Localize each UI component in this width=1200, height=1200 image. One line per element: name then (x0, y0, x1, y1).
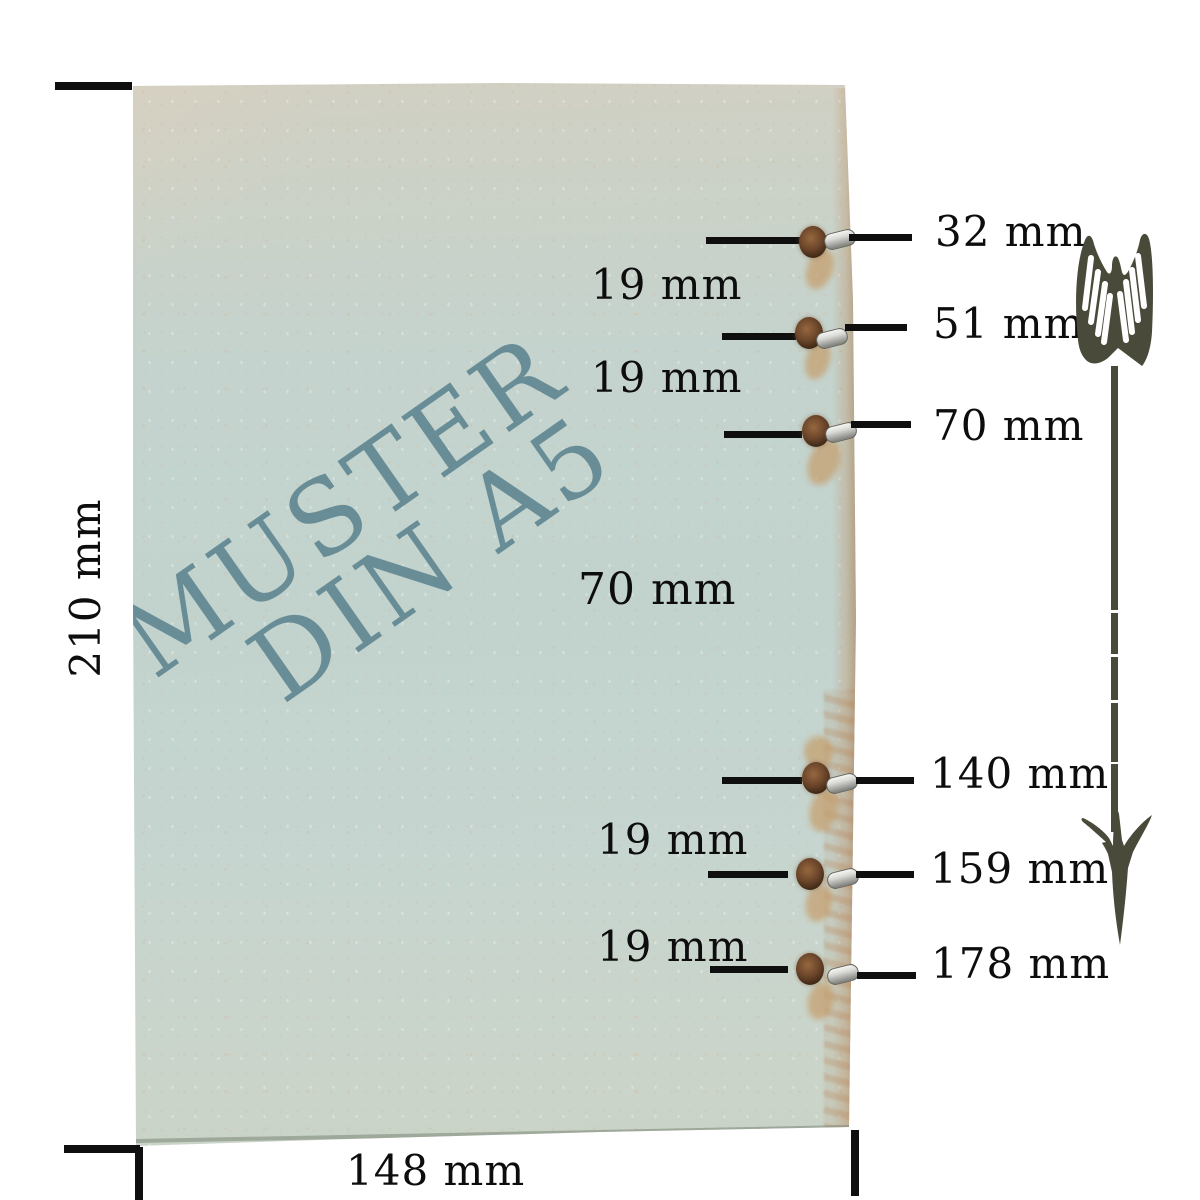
leader-line-left-hole-5 (708, 871, 788, 878)
paper-bottom-edge (136, 1125, 850, 1143)
height-dimension-label: 210 mm (62, 498, 110, 677)
din-a5-hole-position-diagram: MUSTER DIN A5 210 mm 148 mm 32 mm 51 mm … (0, 0, 1200, 1200)
tick-bottom-right-vertical (851, 1130, 859, 1196)
watermark-text: MUSTER DIN A5 (107, 322, 632, 768)
width-dimension-label: 148 mm (346, 1147, 525, 1195)
tick-top-left (55, 82, 132, 90)
leader-line-right-hole-6 (857, 972, 916, 979)
leader-line-left-hole-2 (722, 333, 796, 340)
spacing-label-2: 19 mm (591, 354, 742, 402)
leader-line-right-hole-1 (849, 234, 912, 241)
spacing-label-3: 70 mm (578, 566, 736, 614)
leader-line-left-hole-4 (722, 777, 802, 784)
spacing-label-4: 19 mm (597, 816, 748, 864)
leader-line-right-hole-4 (856, 777, 914, 784)
leader-line-right-hole-2 (845, 324, 907, 331)
binding-hole-6 (796, 953, 824, 985)
leader-line-right-hole-3 (851, 421, 911, 428)
leader-line-right-hole-5 (856, 871, 914, 878)
binding-hole-5 (796, 858, 824, 890)
binding-hole-1 (799, 226, 827, 258)
tick-bottom-left-vertical (135, 1147, 143, 1200)
leader-line-left-hole-3 (724, 431, 802, 438)
binding-hole-4 (802, 762, 830, 794)
down-arrow-icon (1058, 222, 1178, 952)
leader-line-left-hole-1 (706, 237, 800, 244)
tick-bottom-left-horizontal (64, 1145, 140, 1153)
spacing-label-5: 19 mm (597, 923, 748, 971)
spacing-label-1: 19 mm (591, 261, 742, 309)
